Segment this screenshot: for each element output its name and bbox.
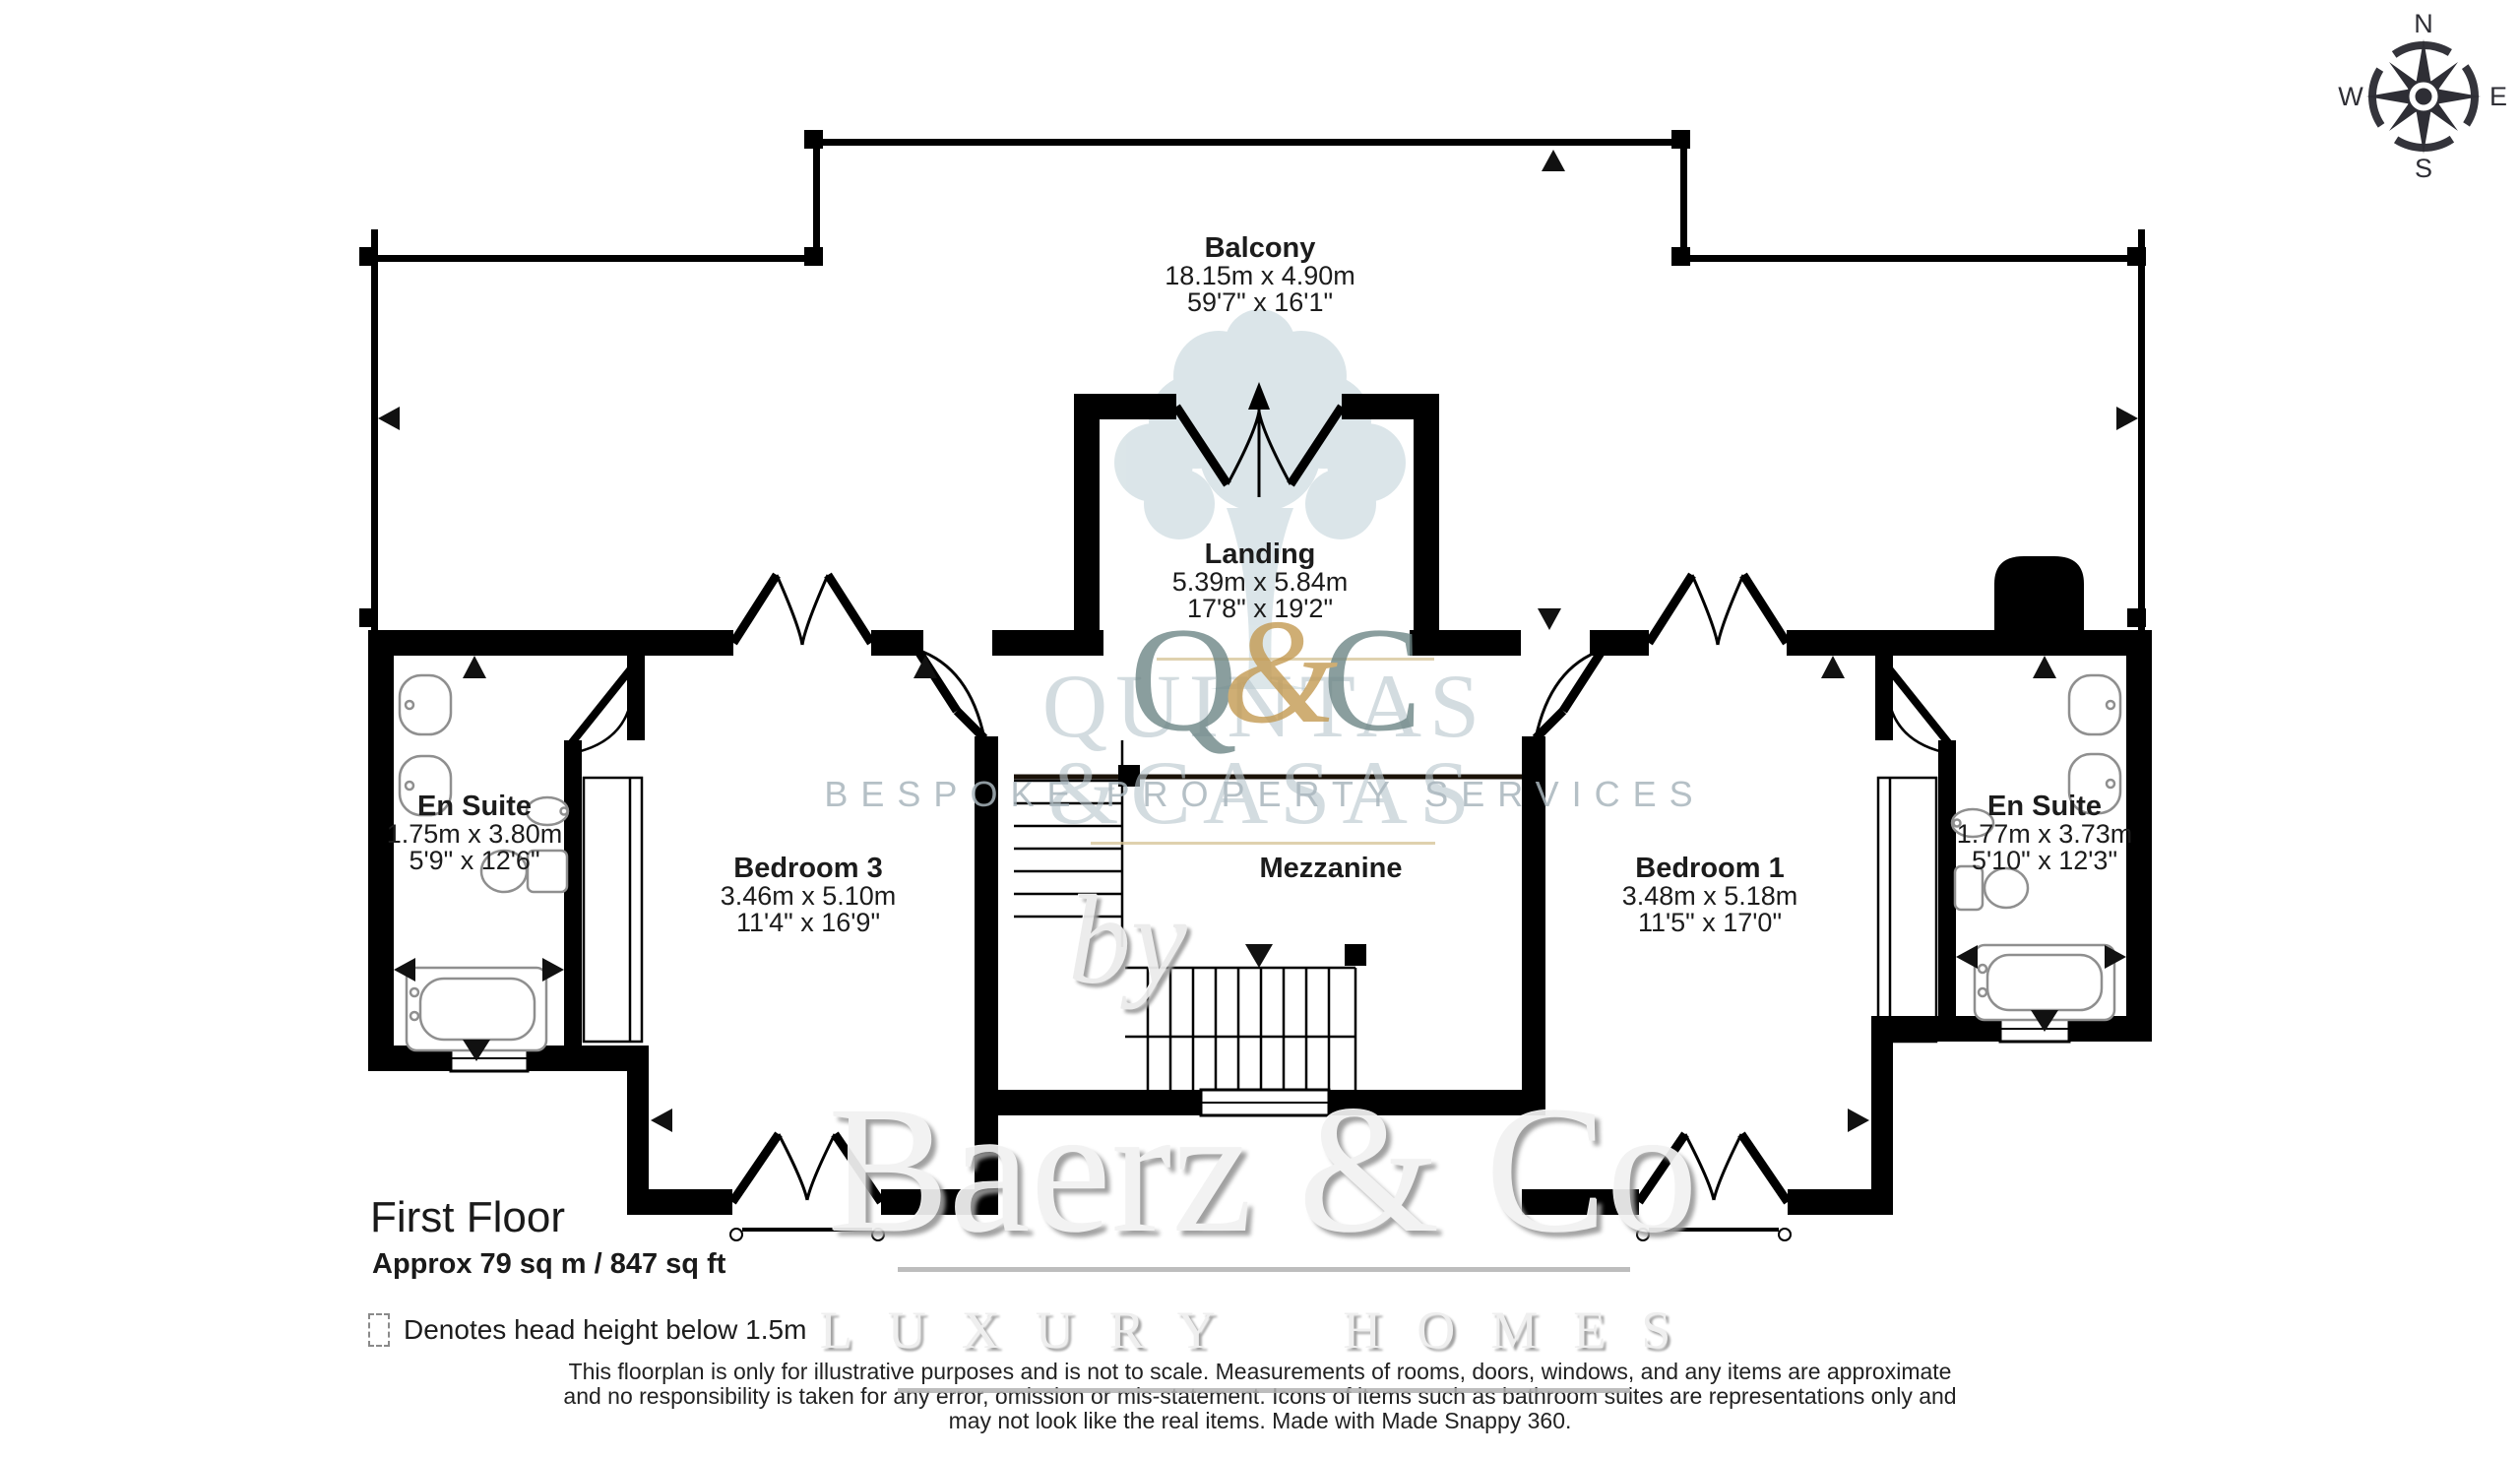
room-imperial: 11'5" x 17'0" [1622,910,1798,936]
room-metric: 1.77m x 3.73m [1957,821,2133,848]
room-name: En Suite [1957,792,2133,821]
room-imperial: 59'7" x 16'1" [1165,289,1355,316]
balcony-label: Balcony 18.15m x 4.90m 59'7" x 16'1" [1165,234,1355,316]
legend-label: Denotes head height below 1.5m [404,1314,806,1346]
disclaimer-line: and no responsibility is taken for any e… [563,1384,1956,1409]
disclaimer: This floorplan is only for illustrative … [563,1360,1956,1433]
mezzanine-label: Mezzanine [1259,855,1402,883]
landing-label: Landing 5.39m x 5.84m 17'8" x 19'2" [1172,540,1349,622]
room-name: Mezzanine [1259,855,1402,883]
bedroom-3-label: Bedroom 3 3.46m x 5.10m 11'4" x 16'9" [721,855,897,936]
room-metric: 1.75m x 3.80m [387,821,563,848]
juliet-railings [730,1229,1791,1240]
floor-area: Approx 79 sq m / 847 sq ft [372,1248,725,1281]
en-suite-right-label: En Suite 1.77m x 3.73m 5'10" x 12'3" [1957,792,2133,874]
room-metric: 18.15m x 4.90m [1165,263,1355,289]
tree-watermark [1114,309,1406,689]
room-name: Balcony [1165,234,1355,263]
room-imperial: 5'9" x 12'6" [387,848,563,874]
legend: Denotes head height below 1.5m [368,1313,806,1347]
room-name: En Suite [387,792,563,821]
room-metric: 5.39m x 5.84m [1172,569,1349,596]
room-name: Bedroom 1 [1622,855,1798,883]
disclaimer-line: may not look like the real items. Made w… [563,1409,1956,1433]
head-height-icon [368,1313,390,1347]
room-metric: 3.48m x 5.18m [1622,883,1798,910]
room-name: Bedroom 3 [721,855,897,883]
staircase [1014,740,1355,1090]
compass-west-label: W [2338,82,2363,111]
room-imperial: 17'8" x 19'2" [1172,596,1349,622]
floor-title: First Floor [370,1193,565,1242]
en-suite-left-label: En Suite 1.75m x 3.80m 5'9" x 12'6" [387,792,563,874]
compass-icon: N E S W [2338,9,2507,183]
room-name: Landing [1172,540,1349,569]
chimney-breast [1994,556,2084,630]
compass-north-label: N [2414,9,2433,38]
disclaimer-line: This floorplan is only for illustrative … [563,1360,1956,1384]
bedroom-1-label: Bedroom 1 3.48m x 5.18m 11'5" x 17'0" [1622,855,1798,936]
compass-east-label: E [2489,82,2507,111]
room-imperial: 5'10" x 12'3" [1957,848,2133,874]
room-metric: 3.46m x 5.10m [721,883,897,910]
room-imperial: 11'4" x 16'9" [721,910,897,936]
compass-south-label: S [2415,154,2432,183]
floorplan-page: N E S W Balcony 18.15m x 4.90m 59'7" x 1… [0,0,2520,1458]
